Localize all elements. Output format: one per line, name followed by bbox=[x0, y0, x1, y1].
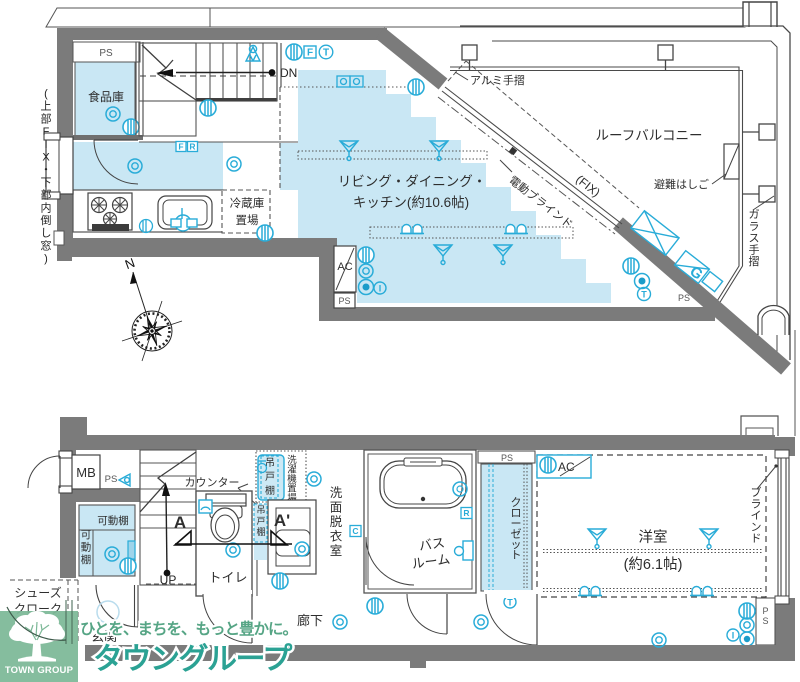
svg-text:T: T bbox=[641, 290, 647, 300]
svg-text:R: R bbox=[189, 142, 195, 152]
svg-text:可動棚: 可動棚 bbox=[81, 529, 92, 566]
svg-text:リビング・ダイニング・: リビング・ダイニング・ bbox=[338, 174, 487, 189]
svg-text:洗面脱衣室: 洗面脱衣室 bbox=[330, 486, 343, 558]
svg-text:F: F bbox=[178, 142, 183, 152]
svg-text:PS: PS bbox=[501, 453, 513, 463]
svg-text:ルーフバルコニー: ルーフバルコニー bbox=[596, 128, 703, 143]
svg-text:I: I bbox=[732, 631, 735, 641]
svg-text:シューズ: シューズ bbox=[14, 585, 61, 600]
svg-text:MB: MB bbox=[76, 465, 96, 480]
svg-text:(約6.1帖): (約6.1帖) bbox=[624, 556, 683, 573]
svg-text:タウングループ: タウングループ bbox=[93, 643, 293, 676]
svg-text:T: T bbox=[323, 48, 329, 59]
svg-text:PS: PS bbox=[338, 296, 350, 306]
svg-text:DN: DN bbox=[280, 66, 297, 80]
svg-text:冷蔵庫: 冷蔵庫 bbox=[230, 196, 265, 210]
svg-text:PS: PS bbox=[105, 474, 118, 485]
svg-text:避難はしご: 避難はしご bbox=[654, 177, 709, 191]
svg-text:置場: 置場 bbox=[236, 214, 259, 227]
svg-text:カウンター: カウンター bbox=[185, 476, 240, 489]
svg-text:ブラインド: ブラインド bbox=[751, 485, 762, 545]
svg-text:吊戸棚: 吊戸棚 bbox=[265, 457, 275, 497]
svg-text:I: I bbox=[379, 284, 382, 294]
svg-text:アルミ手摺: アルミ手摺 bbox=[470, 73, 525, 87]
svg-text:洋室: 洋室 bbox=[639, 529, 668, 546]
svg-text:TOWN GROUP: TOWN GROUP bbox=[5, 665, 74, 676]
svg-text:T: T bbox=[507, 598, 513, 608]
svg-text:可動棚: 可動棚 bbox=[97, 514, 129, 527]
svg-text:吊戸棚: 吊戸棚 bbox=[256, 505, 265, 537]
svg-text:A': A' bbox=[274, 511, 290, 530]
svg-text:ガラス手摺: ガラス手摺 bbox=[749, 208, 760, 268]
svg-text:PS: PS bbox=[678, 293, 690, 303]
svg-text:PS: PS bbox=[99, 48, 113, 59]
svg-text:クローゼット: クローゼット bbox=[511, 496, 522, 562]
svg-text:キッチン(約10.6帖): キッチン(約10.6帖) bbox=[353, 195, 469, 210]
svg-text:AC: AC bbox=[337, 261, 352, 273]
svg-text:トイレ: トイレ bbox=[208, 570, 247, 585]
svg-text:ひとを、まちを、もっと豊かに。: ひとを、まちを、もっと豊かに。 bbox=[80, 619, 297, 638]
svg-text:C: C bbox=[352, 526, 358, 536]
svg-text:F: F bbox=[307, 48, 313, 59]
svg-text:(上部FIX・下部内倒し窓): (上部FIX・下部内倒し窓) bbox=[41, 88, 52, 265]
svg-text:A: A bbox=[174, 513, 186, 532]
svg-text:R: R bbox=[463, 508, 469, 518]
svg-text:廊下: 廊下 bbox=[297, 613, 323, 628]
svg-text:食品庫: 食品庫 bbox=[88, 89, 124, 104]
svg-text:PS: PS bbox=[762, 606, 768, 626]
svg-text:UP: UP bbox=[160, 573, 177, 587]
svg-text:洗濯機置場: 洗濯機置場 bbox=[287, 454, 297, 504]
